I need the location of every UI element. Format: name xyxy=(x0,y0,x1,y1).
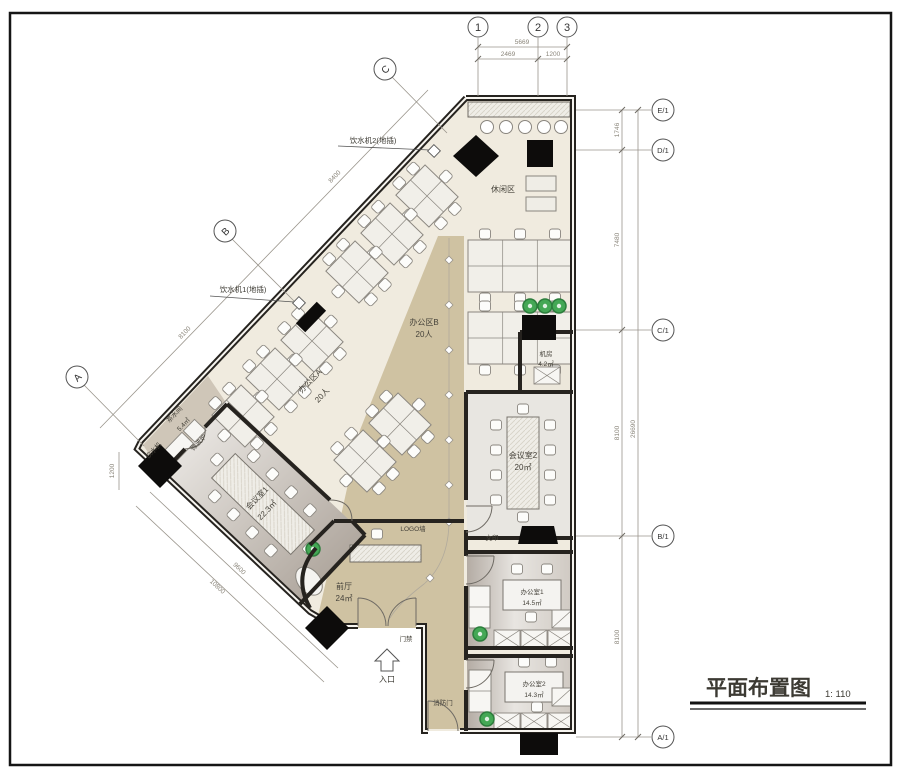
drawing-scale: 1: 110 xyxy=(825,689,851,700)
printer-unit xyxy=(518,526,558,544)
plant xyxy=(523,299,537,313)
bar-counter xyxy=(468,102,570,117)
leisure-table xyxy=(526,176,556,191)
dim-diag-seg1: 8400 xyxy=(327,169,342,185)
server-unit xyxy=(534,367,560,384)
entrance-label: 入口 xyxy=(379,675,395,684)
grid-bubble-d1-label: D/1 xyxy=(657,146,669,155)
dim-right-seg2: 7480 xyxy=(614,232,621,247)
dim-right-total: 26690 xyxy=(630,420,637,438)
office2-label: 办公室2 xyxy=(522,679,546,688)
plant xyxy=(480,712,494,726)
plant xyxy=(538,299,552,313)
note-water1: 饮水机1(地插) xyxy=(220,284,267,294)
plant xyxy=(552,299,566,313)
fire-door-label: 消防门 xyxy=(433,698,453,707)
meeting2-area: 20㎡ xyxy=(515,463,532,472)
desk-bank xyxy=(468,229,572,303)
access-control-label: 门禁 xyxy=(400,634,414,643)
dim-diag-seg2: 8100 xyxy=(177,325,192,341)
floor-plan-svg: 1 2 3 5669 2469 1200 E/1 D/1 C/1 B/1 A/1… xyxy=(0,0,900,776)
machine-room-label: 机房 xyxy=(540,349,553,358)
print-area-label: 文印 xyxy=(486,533,499,542)
dim-bottom-outer: 10800 xyxy=(208,578,226,596)
floor-plan-page: 1 2 3 5669 2469 1200 E/1 D/1 C/1 B/1 A/1… xyxy=(0,0,900,776)
note-water2: 饮水机2(地插) xyxy=(350,135,397,145)
dim-right-seg4: 8100 xyxy=(614,629,621,644)
grid-bubble-3-label: 3 xyxy=(564,22,570,34)
lobby-label: 前厅 xyxy=(336,581,352,591)
machine-room-area: 4.2㎡ xyxy=(538,359,554,368)
dim-top-seg2: 1200 xyxy=(546,51,561,58)
logo-wall-label: LOGO墙 xyxy=(400,524,426,533)
dim-right-seg3: 8100 xyxy=(614,425,621,440)
entrance-arrow-icon xyxy=(375,649,399,671)
office-b-capacity: 20人 xyxy=(416,330,433,339)
column xyxy=(520,733,558,755)
grid-bubble-b1-label: B/1 xyxy=(657,532,668,541)
office1-label: 办公室1 xyxy=(520,587,544,596)
leisure-table xyxy=(526,197,556,211)
plant xyxy=(473,627,487,641)
leisure-label: 休闲区 xyxy=(491,184,515,194)
column xyxy=(522,315,556,340)
dim-top-seg1: 2469 xyxy=(501,51,516,58)
grid-bubble-a1-label: A/1 xyxy=(657,733,668,742)
dim-right-seg1: 1746 xyxy=(614,122,621,137)
office2-area: 14.3㎡ xyxy=(524,690,544,699)
dim-bottom-inner: 9600 xyxy=(231,561,247,576)
grid-bubble-2-label: 2 xyxy=(535,22,541,34)
grid-bubble-1-label: 1 xyxy=(475,22,481,34)
lobby-area: 24㎡ xyxy=(336,594,353,603)
entrance-marker: 入口 xyxy=(375,649,399,684)
title-block: 平面布置图 1: 110 xyxy=(690,676,866,709)
meeting2-label: 会议室2 xyxy=(509,450,538,460)
office1-area: 14.5㎡ xyxy=(522,598,542,607)
dim-top-total: 5669 xyxy=(515,39,530,46)
reception-desk xyxy=(350,545,421,562)
column xyxy=(527,140,553,167)
office-b-label: 办公区B xyxy=(409,317,438,327)
grid-bubble-c1-label: C/1 xyxy=(657,326,669,335)
dim-left-small: 1200 xyxy=(109,463,116,478)
drawing-title: 平面布置图 xyxy=(706,676,811,700)
grid-bubble-e1-label: E/1 xyxy=(657,106,668,115)
